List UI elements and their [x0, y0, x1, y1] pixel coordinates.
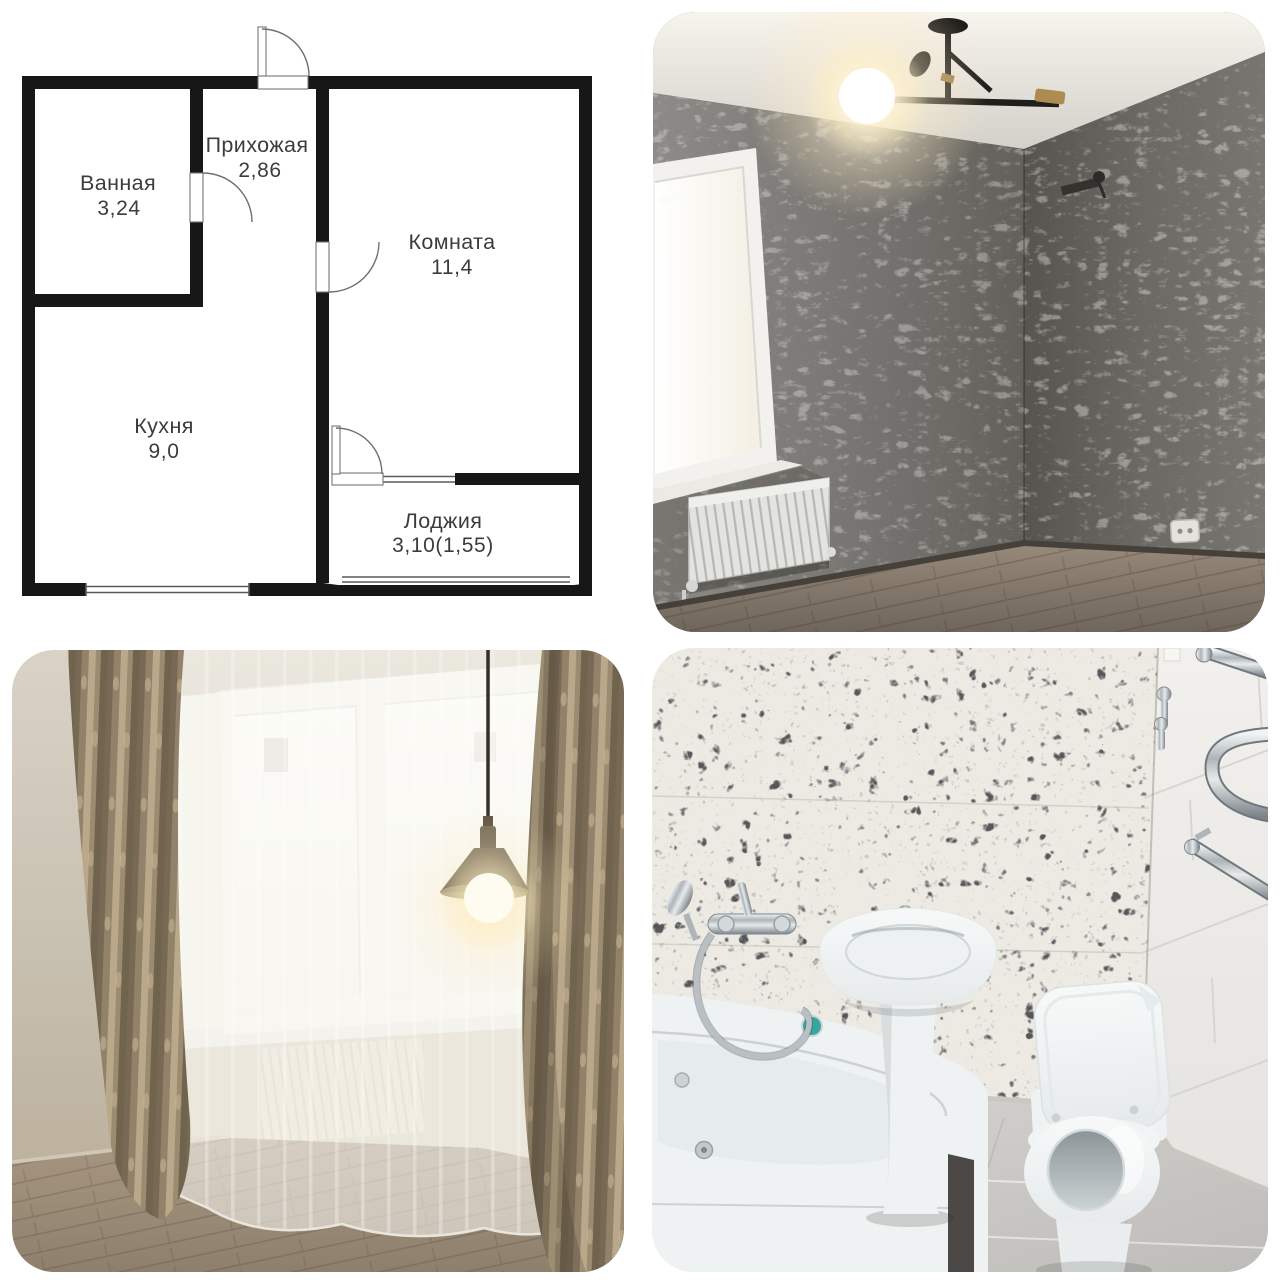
- entrance-threshold: [258, 76, 308, 89]
- entrance-door-leaf: [258, 27, 266, 76]
- room-area-room: 11,4: [431, 256, 473, 279]
- lamp-glow-core: [839, 68, 895, 124]
- bathroom-door-opening: [190, 173, 203, 222]
- room-label-room: Комната: [409, 230, 496, 254]
- toilet-bowl-opening: [1048, 1130, 1124, 1210]
- photo-bathroom-svg: [652, 648, 1268, 1272]
- room-area-kitchen: 9,0: [149, 440, 180, 463]
- balcony-door-opening: [332, 473, 383, 485]
- photo-room-gray-wallpaper: [652, 12, 1266, 632]
- tub-side-gap: [948, 1154, 974, 1272]
- photo-bathroom: [652, 648, 1268, 1272]
- room-label-kitchen: Кухня: [134, 414, 194, 438]
- room-area-hallway: 2,86: [238, 159, 281, 182]
- room-door-arc: [329, 242, 379, 292]
- room-label-hallway: Прихожая: [206, 133, 309, 157]
- toilet-lid-open: [1032, 979, 1172, 1136]
- room-door-opening: [316, 242, 329, 292]
- plan-labels: Ванная 3,24 Прихожая 2,86 Комната 11,4 К…: [80, 133, 496, 557]
- room-label-loggia: Лоджия: [404, 509, 483, 533]
- photo-room-curtains: [12, 650, 624, 1272]
- power-outlet: [1170, 519, 1199, 542]
- balcony-door-arc: [336, 428, 382, 474]
- room-area-loggia: 3,10(1,55): [392, 534, 494, 557]
- plan-doors: [190, 27, 383, 485]
- pipe-fitting-1: [1157, 687, 1171, 701]
- room-label-bathroom: Ванная: [80, 171, 156, 195]
- warm-cast: [12, 650, 624, 1272]
- apartment-collage: Ванная 3,24 Прихожая 2,86 Комната 11,4 К…: [0, 0, 1280, 1280]
- pipe-fitting-2: [1155, 718, 1168, 731]
- radiator-valve: [826, 547, 836, 557]
- room-area-bathroom: 3,24: [97, 197, 140, 220]
- wall-box: [1164, 648, 1180, 661]
- floor-plan: Ванная 3,24 Прихожая 2,86 Комната 11,4 К…: [0, 0, 640, 640]
- balcony-door-leaf: [332, 426, 340, 474]
- floor-plan-svg: Ванная 3,24 Прихожая 2,86 Комната 11,4 К…: [0, 0, 640, 640]
- entrance-door-arc: [262, 29, 309, 76]
- photo-room-gray-svg: [652, 12, 1266, 632]
- photo-room-curtains-svg: [12, 650, 624, 1272]
